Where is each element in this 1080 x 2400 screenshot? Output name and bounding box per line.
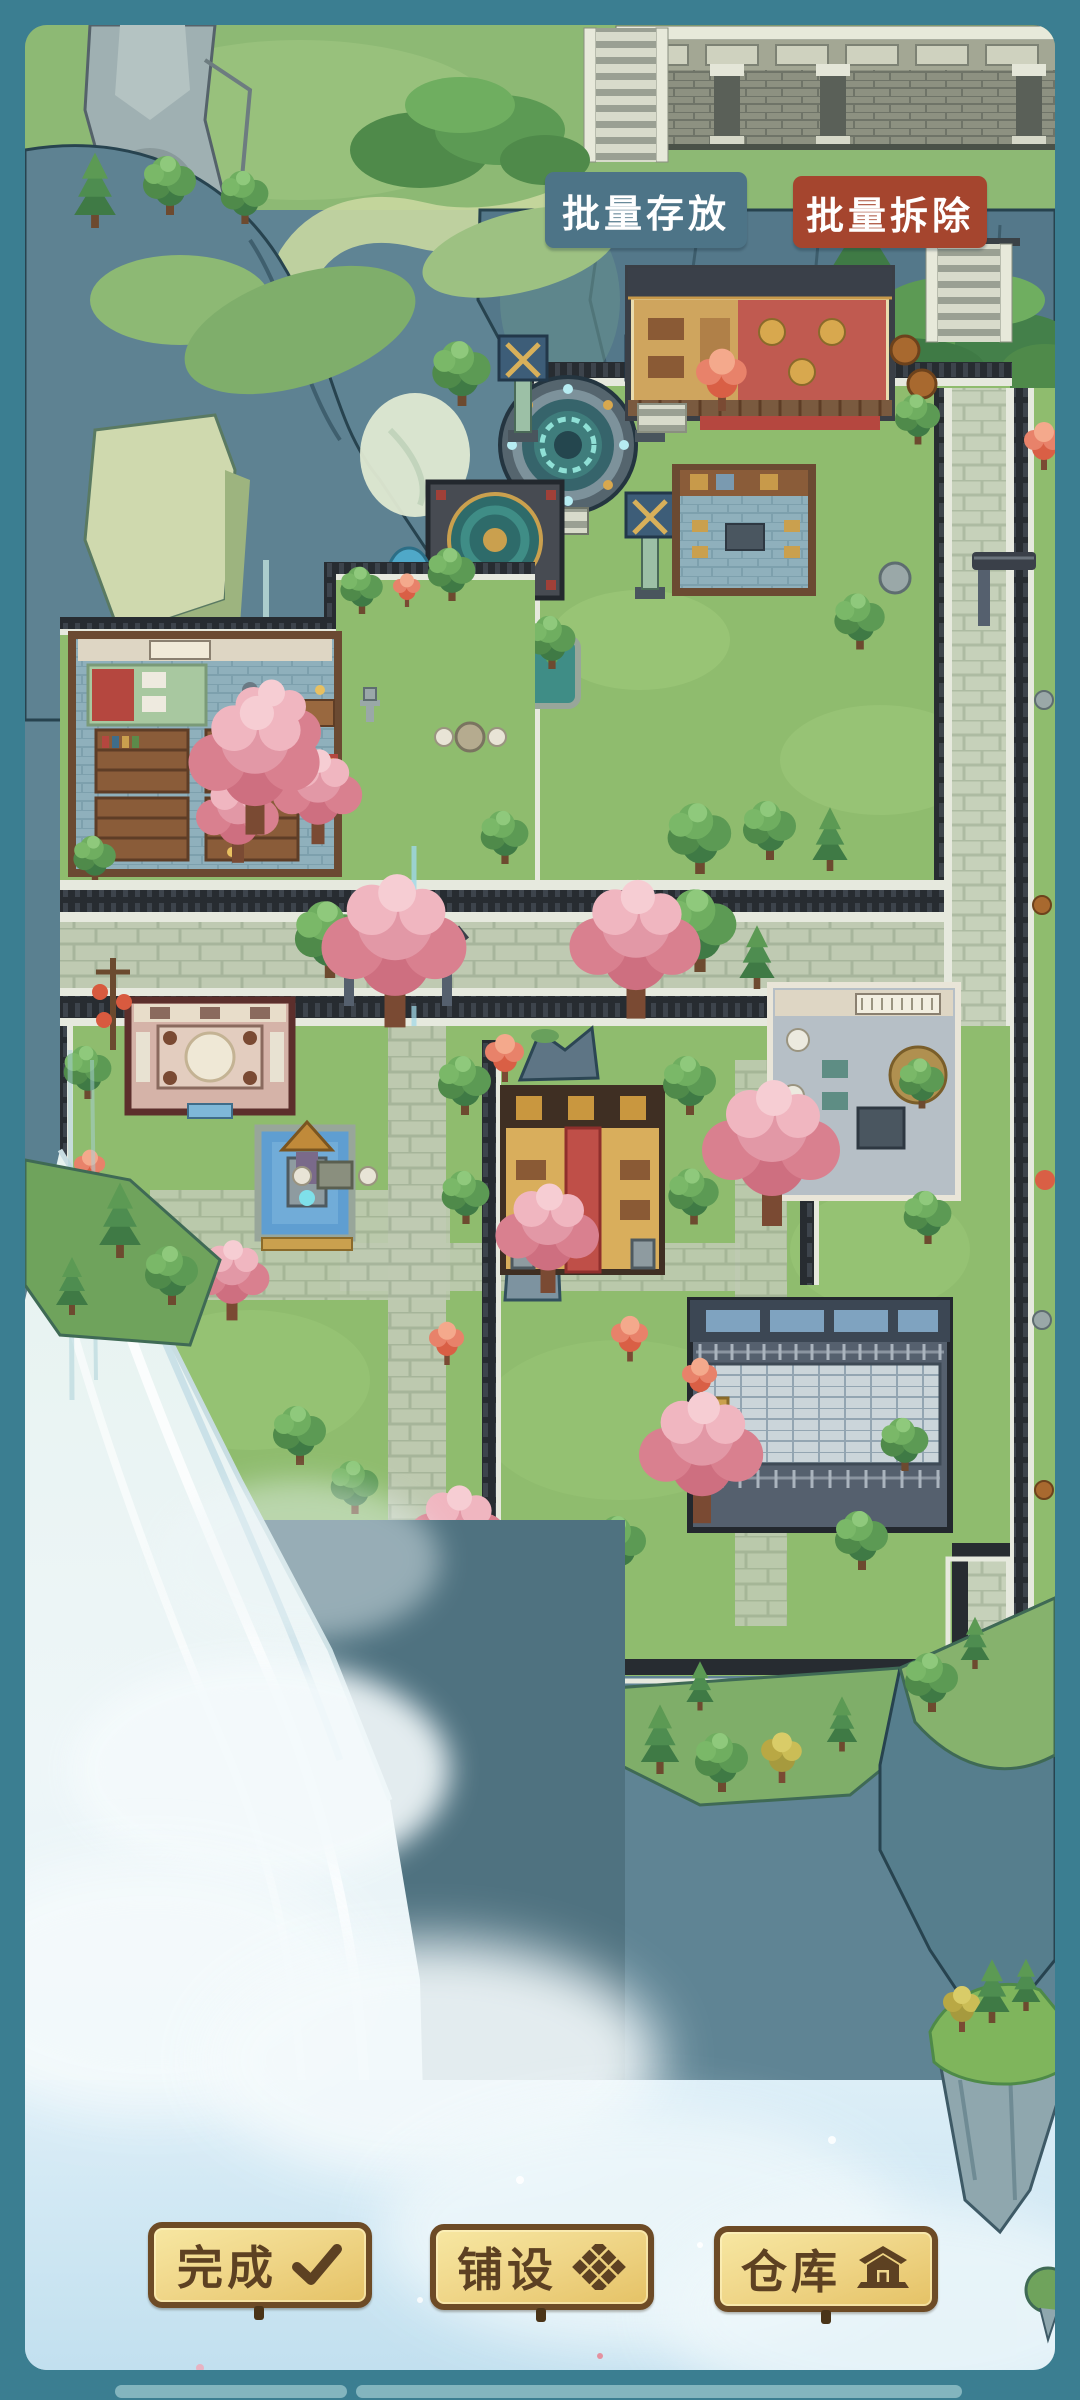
blue-room bbox=[676, 468, 812, 592]
batch-store-button[interactable]: 批量存放 bbox=[545, 172, 747, 248]
pave-button-pin bbox=[536, 2308, 546, 2322]
nav-hint-bar[interactable] bbox=[356, 2385, 962, 2398]
nav-hint-bar[interactable] bbox=[115, 2385, 347, 2398]
dining-hall bbox=[628, 268, 892, 432]
warehouse-button-pin bbox=[821, 2310, 831, 2324]
wall-staircase-left bbox=[584, 28, 668, 162]
done-button-pin bbox=[254, 2306, 264, 2320]
done-button[interactable]: 完成 bbox=[148, 2222, 372, 2308]
done-button-label: 完成 bbox=[177, 2232, 277, 2298]
warehouse-button[interactable]: 仓库 bbox=[714, 2226, 938, 2312]
tile-grid-icon bbox=[571, 2244, 627, 2290]
cliff-staircase-right bbox=[920, 238, 1020, 342]
checkmark-icon bbox=[291, 2243, 343, 2287]
top-wall bbox=[584, 26, 1055, 162]
map-viewport bbox=[25, 25, 1055, 2370]
screen: { "frame": { "border_color": "#3b7e91", … bbox=[0, 0, 1080, 2400]
batch-demolish-button[interactable]: 批量拆除 bbox=[793, 176, 987, 248]
game-map[interactable] bbox=[25, 25, 1055, 2370]
warehouse-button-label: 仓库 bbox=[741, 2236, 841, 2302]
meditation-pavilion bbox=[128, 1000, 292, 1118]
pave-button[interactable]: 铺设 bbox=[430, 2224, 654, 2310]
pave-button-label: 铺设 bbox=[457, 2234, 557, 2300]
warehouse-icon bbox=[855, 2244, 911, 2294]
